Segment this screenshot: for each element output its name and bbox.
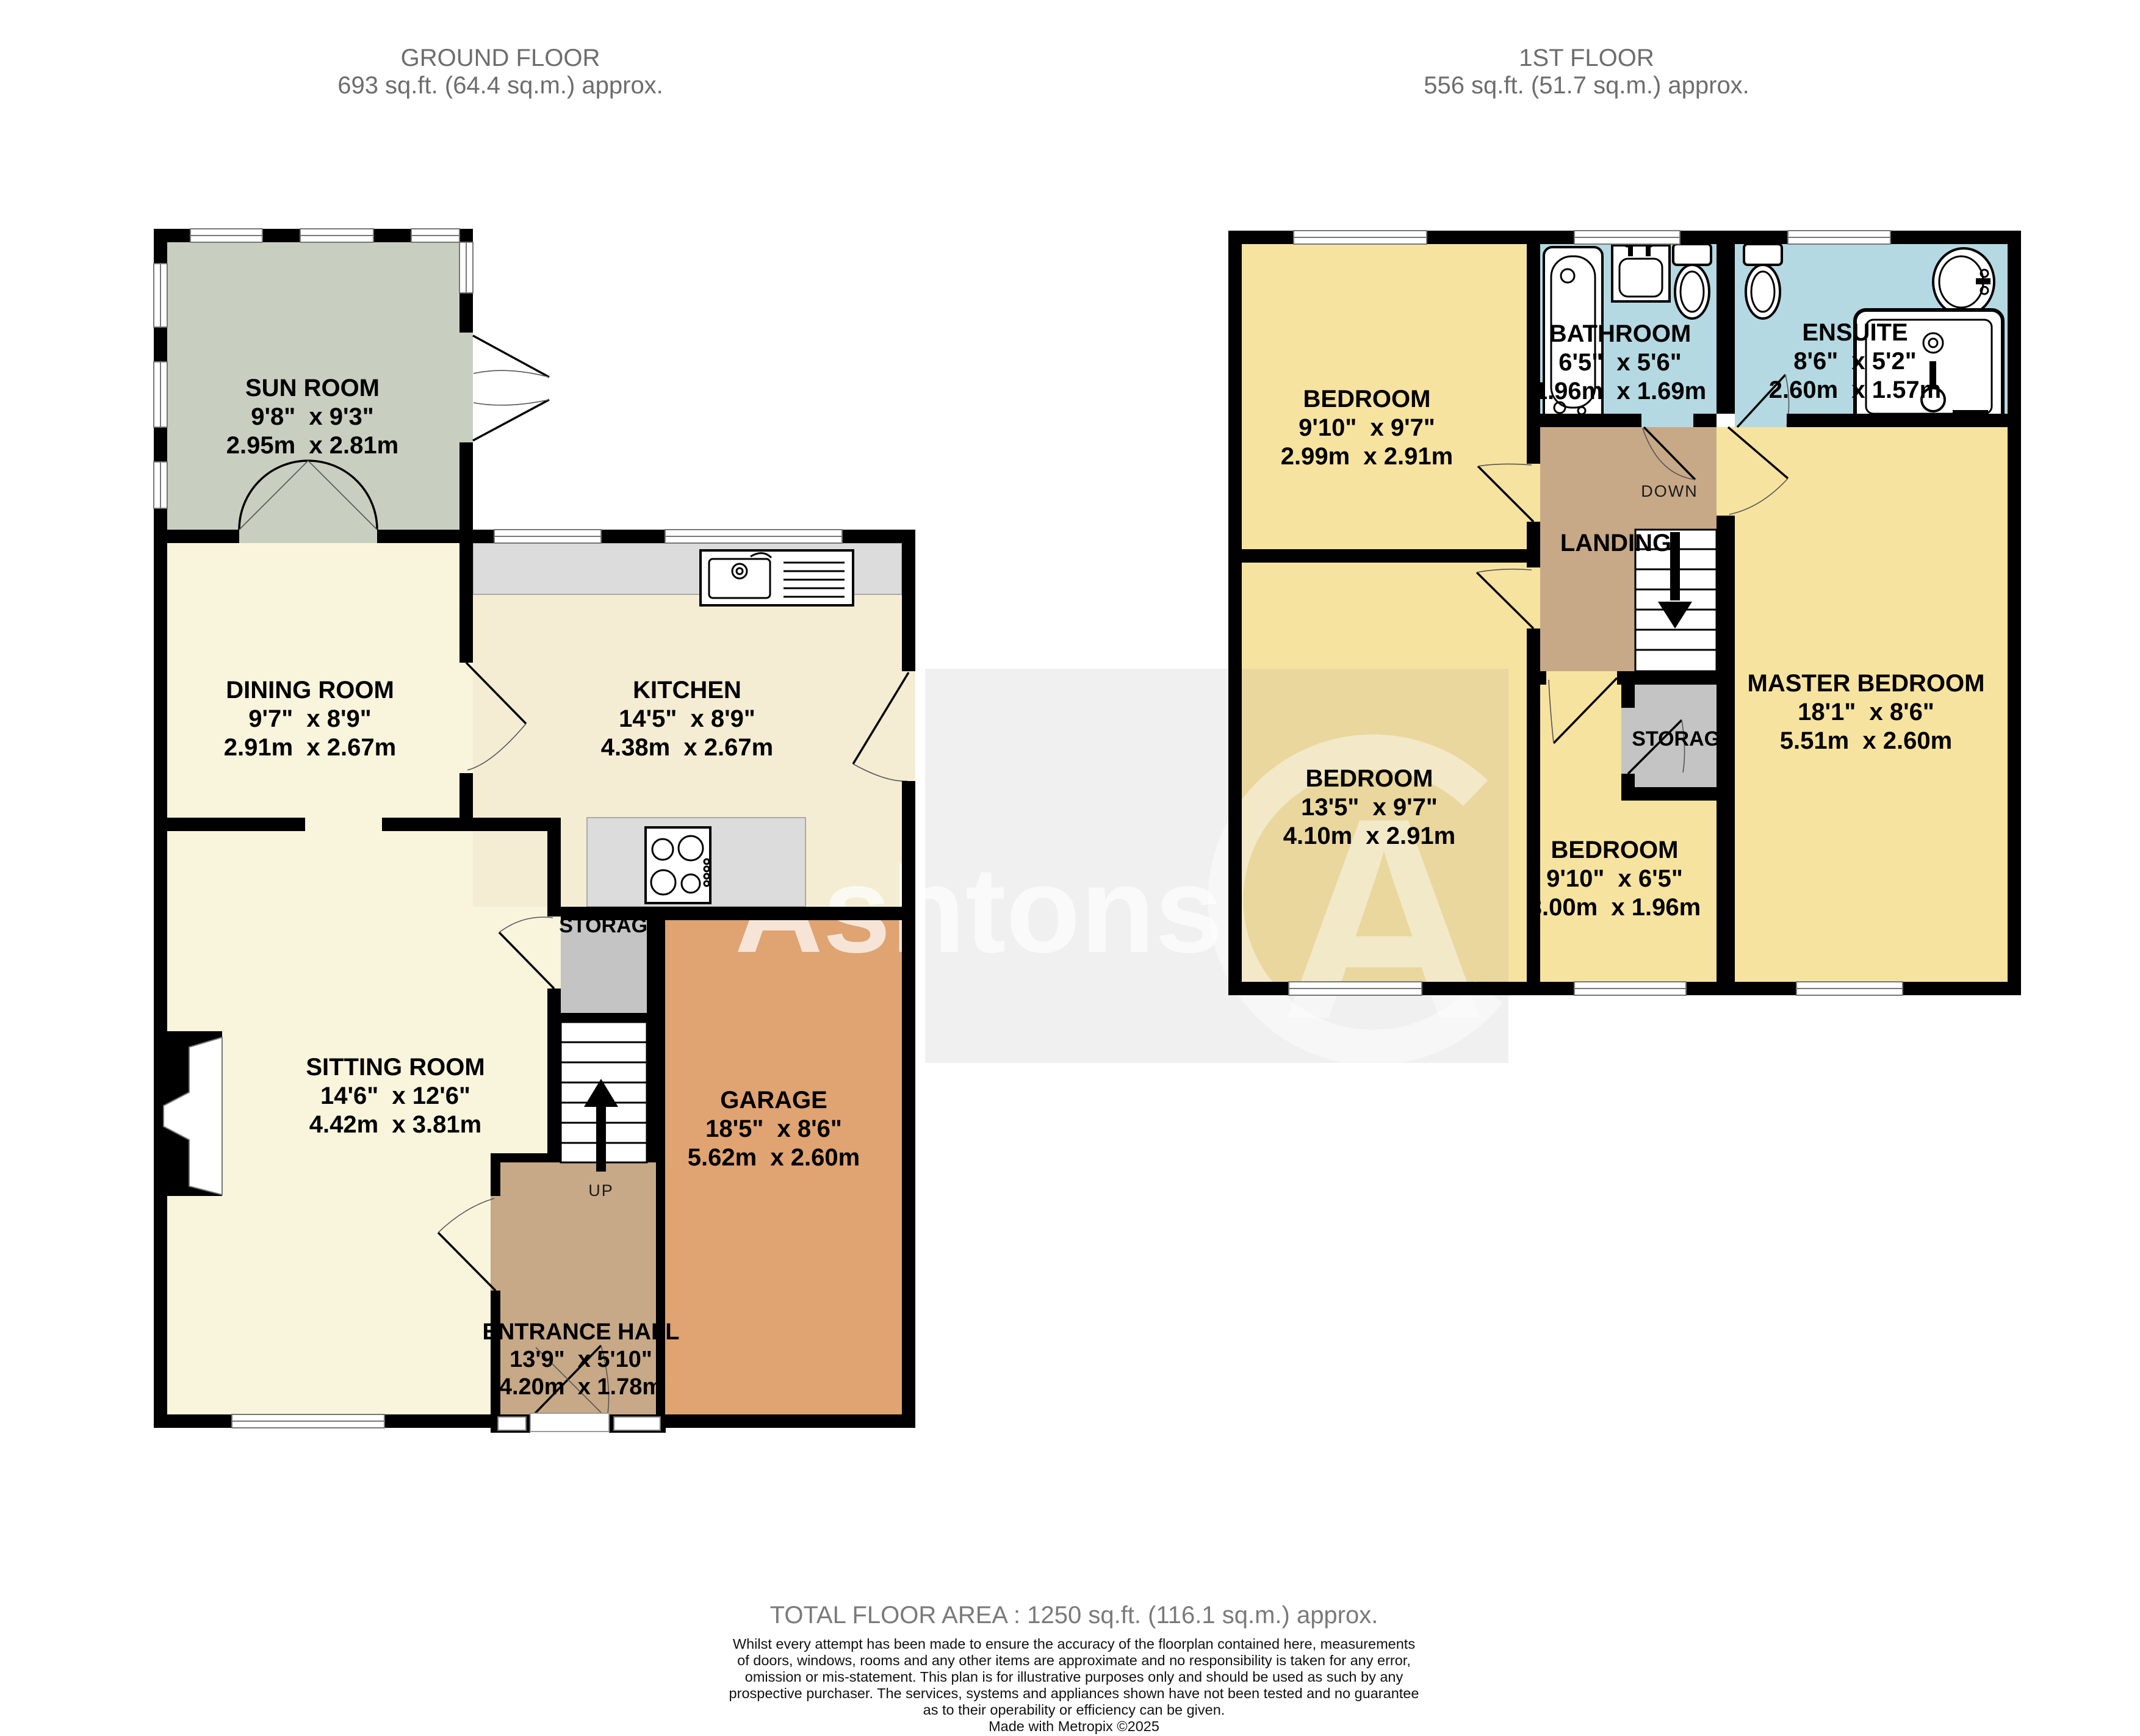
bedroom-front-label: BEDROOM: [1303, 386, 1431, 412]
ground-floor-area: 693 sq.ft. (64.4 sq.m.) approx.: [337, 72, 663, 99]
footer: TOTAL FLOOR AREA : 1250 sq.ft. (116.1 sq…: [729, 1602, 1419, 1734]
ensuite-sink-icon: [1933, 248, 1994, 315]
down-label: DOWN: [1641, 482, 1698, 500]
disclaimer-line: omission or mis-statement. This plan is …: [745, 1669, 1403, 1685]
metropix-credit: Made with Metropix ©2025: [989, 1718, 1159, 1734]
svg-text:18'1" x 8'6": 18'1" x 8'6": [1798, 699, 1934, 726]
svg-text:4.10m x 2.91m: 4.10m x 2.91m: [1283, 823, 1455, 849]
up-label: UP: [588, 1181, 614, 1200]
svg-text:13'5" x 9'7": 13'5" x 9'7": [1301, 794, 1438, 821]
svg-text:1.96m x 1.69m: 1.96m x 1.69m: [1534, 378, 1706, 405]
bathroom-toilet-icon: [1673, 244, 1711, 319]
front-door-opening: [530, 1413, 609, 1432]
disclaimer-line: as to their operability or efficiency ca…: [923, 1702, 1225, 1718]
garage-label: GARAGE: [720, 1087, 827, 1114]
svg-text:9'8" x 9'3": 9'8" x 9'3": [251, 403, 374, 430]
disclaimer-line: of doors, windows, rooms and any other i…: [737, 1652, 1411, 1668]
sitting-room-label: SITTING ROOM: [306, 1054, 485, 1081]
bathroom-label: BATHROOM: [1549, 320, 1691, 347]
svg-text:9'10" x 9'7": 9'10" x 9'7": [1299, 414, 1435, 441]
total-floor-area: TOTAL FLOOR AREA : 1250 sq.ft. (116.1 sq…: [770, 1602, 1378, 1629]
ground-floor-title: GROUND FLOOR: [401, 45, 600, 71]
svg-text:2.91m x 2.67m: 2.91m x 2.67m: [224, 734, 396, 761]
ensuite-label: ENSUITE: [1802, 319, 1908, 346]
svg-text:9'7" x 8'9": 9'7" x 8'9": [248, 705, 372, 732]
bathroom-sink-icon: [1612, 239, 1670, 301]
ensuite-toilet-icon: [1744, 244, 1782, 319]
disclaimer-line: prospective purchaser. The services, sys…: [729, 1685, 1419, 1701]
sun-room-label: SUN ROOM: [245, 375, 380, 402]
svg-text:18'5" x 8'6": 18'5" x 8'6": [705, 1115, 842, 1142]
sink-icon: [701, 550, 853, 605]
dining-room-label: DINING ROOM: [226, 677, 394, 704]
svg-text:4.42m x 3.81m: 4.42m x 3.81m: [309, 1111, 481, 1138]
hob-icon: [646, 827, 710, 903]
svg-text:6'5" x 5'6": 6'5" x 5'6": [1558, 349, 1682, 376]
svg-text:3.00m x 1.96m: 3.00m x 1.96m: [1529, 894, 1701, 921]
stairs-up-icon: [561, 1022, 647, 1172]
floorplan-svg: Ashtons A: [0, 0, 2140, 1736]
svg-text:14'5" x 8'9": 14'5" x 8'9": [619, 705, 755, 732]
svg-text:2.99m x 2.91m: 2.99m x 2.91m: [1281, 443, 1453, 470]
landing-label: LANDING: [1560, 530, 1671, 556]
master-bedroom-label: MASTER BEDROOM: [1748, 670, 1985, 697]
svg-text:5.51m x 2.60m: 5.51m x 2.60m: [1780, 727, 1952, 754]
svg-text:8'6" x 5'2": 8'6" x 5'2": [1793, 348, 1917, 375]
disclaimer-line: Whilst every attempt has been made to en…: [733, 1636, 1415, 1652]
kitchen-label: KITCHEN: [633, 677, 741, 704]
svg-text:2.60m x 1.57m: 2.60m x 1.57m: [1769, 376, 1941, 403]
svg-text:14'6" x 12'6": 14'6" x 12'6": [320, 1082, 470, 1109]
svg-text:2.95m x 2.81m: 2.95m x 2.81m: [226, 432, 398, 459]
svg-text:4.38m x 2.67m: 4.38m x 2.67m: [601, 734, 773, 761]
entrance-hall-label: ENTRANCE HALL: [483, 1319, 680, 1345]
svg-text:9'10" x 6'5": 9'10" x 6'5": [1546, 865, 1683, 892]
bedroom-middle-label: BEDROOM: [1306, 765, 1433, 792]
bedroom-small-label: BEDROOM: [1551, 837, 1679, 863]
svg-text:5.62m x 2.60m: 5.62m x 2.60m: [688, 1144, 860, 1171]
fireplace-icon: [154, 1031, 222, 1196]
svg-text:4.20m x 1.78m: 4.20m x 1.78m: [499, 1374, 663, 1400]
svg-text:13'9" x 5'10": 13'9" x 5'10": [510, 1347, 652, 1372]
first-floor-area: 556 sq.ft. (51.7 sq.m.) approx.: [1424, 72, 1749, 99]
first-floor-title: 1ST FLOOR: [1519, 45, 1654, 71]
